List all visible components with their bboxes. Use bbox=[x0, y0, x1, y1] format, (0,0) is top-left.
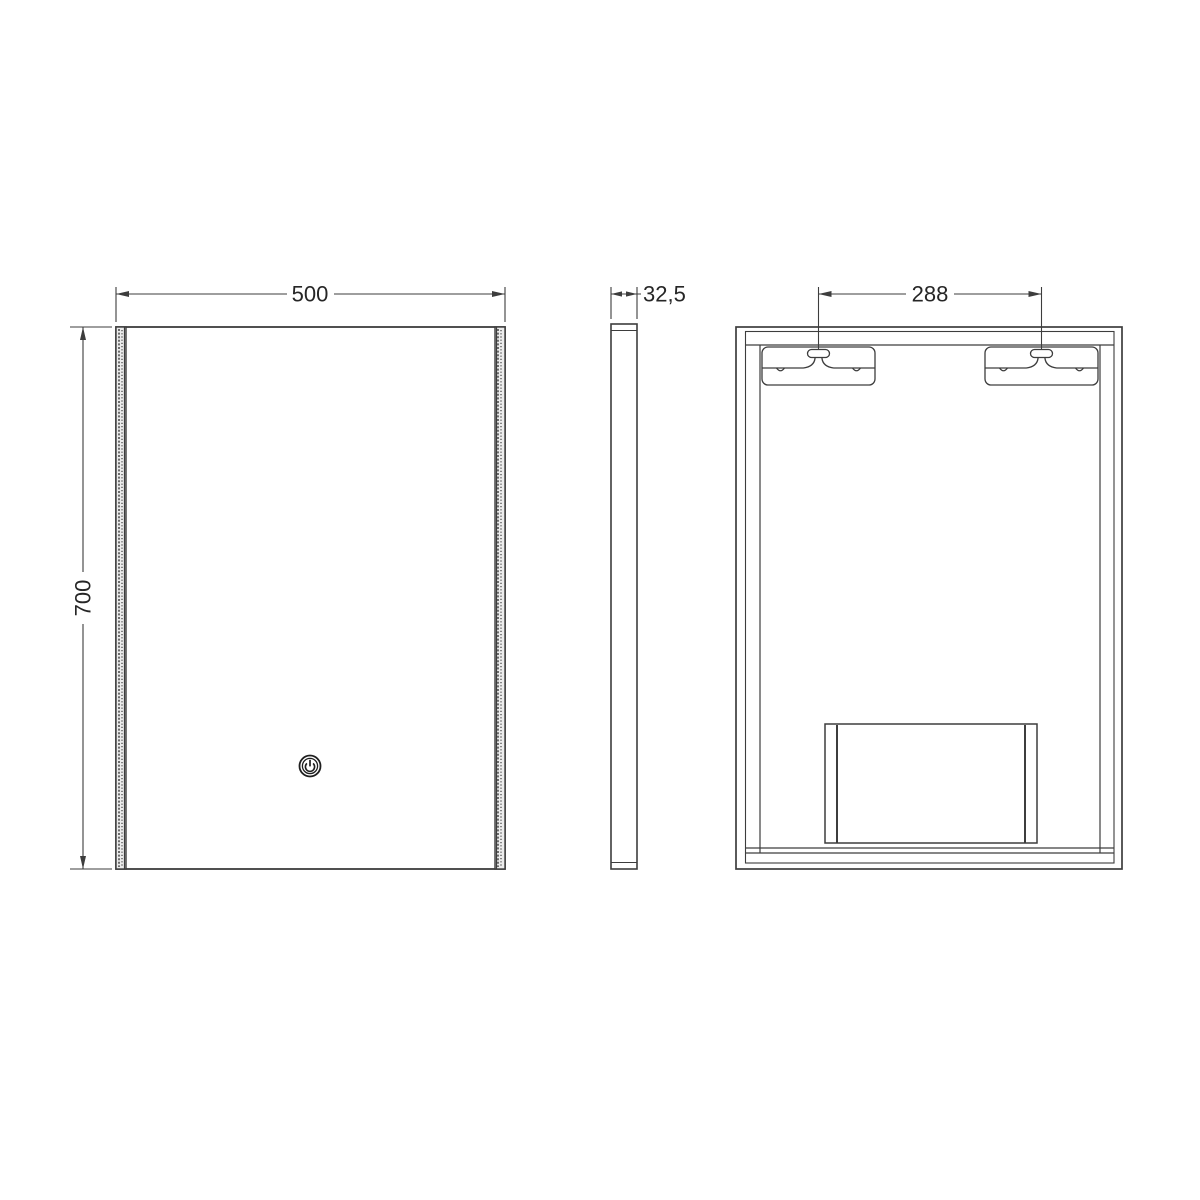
mounting-bracket-left bbox=[762, 347, 875, 385]
side-depth-dimension: 32,5 bbox=[611, 282, 686, 320]
driver-box bbox=[825, 724, 1037, 843]
arrowhead bbox=[116, 291, 129, 297]
side-profile-outline bbox=[611, 324, 637, 869]
arrowhead bbox=[1029, 291, 1042, 297]
arrowhead bbox=[80, 856, 86, 869]
keyhole-slot bbox=[1027, 350, 1057, 369]
bracket-spacing-dimension: 288 bbox=[819, 282, 1042, 350]
power-icon bbox=[300, 756, 321, 777]
front-width-dimension: 500 bbox=[116, 282, 505, 323]
technical-drawing: 500 700 32,5 bbox=[0, 0, 1200, 1200]
mounting-bracket-right bbox=[985, 347, 1098, 385]
keyhole-slot bbox=[804, 350, 834, 369]
arrowhead bbox=[626, 291, 637, 296]
front-view: 500 700 bbox=[70, 282, 505, 870]
side-view: 32,5 bbox=[611, 282, 686, 870]
arrowhead bbox=[611, 291, 622, 296]
side-depth-label: 32,5 bbox=[643, 282, 686, 307]
back-view: 288 bbox=[736, 282, 1122, 870]
arrowhead bbox=[819, 291, 832, 297]
back-inner-panel bbox=[746, 345, 1115, 853]
front-height-label: 700 bbox=[71, 580, 96, 617]
arrowhead bbox=[80, 327, 86, 340]
mirror-outline bbox=[116, 327, 505, 869]
drawing-canvas: 500 700 32,5 bbox=[0, 0, 1200, 1200]
led-strip-right bbox=[495, 327, 505, 869]
bracket-spacing-label: 288 bbox=[912, 282, 949, 307]
back-glass-edge bbox=[746, 332, 1115, 864]
led-strip-left bbox=[116, 327, 126, 869]
back-outer-outline bbox=[736, 327, 1122, 869]
front-width-label: 500 bbox=[292, 282, 329, 307]
arrowhead bbox=[492, 291, 505, 297]
front-height-dimension: 700 bbox=[70, 327, 112, 869]
